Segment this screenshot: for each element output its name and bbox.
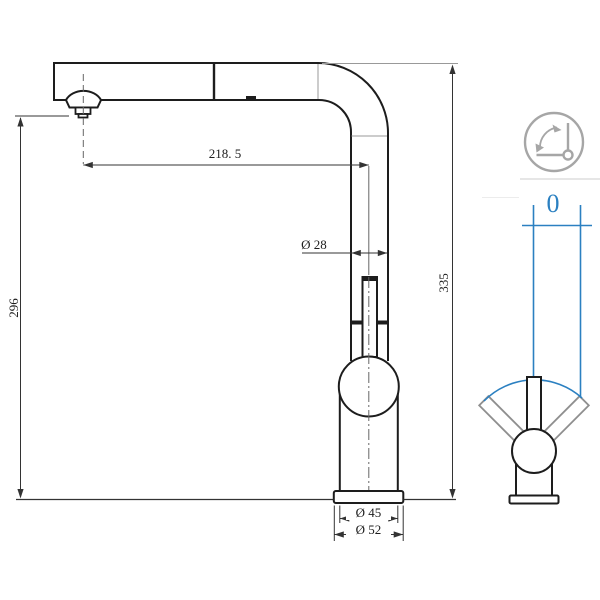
nozzle-tip [79,114,88,118]
front-spout [527,377,541,434]
handle-lever-cap [362,276,379,281]
arrow-up [449,65,455,75]
faucet-side-view [54,63,403,503]
faucet-front-view [510,377,559,504]
icon-circle [525,113,583,171]
dimension-218-5 [83,162,369,168]
front-handle-ball [512,429,556,473]
handle-lever [363,277,378,357]
swivel-dimension [484,205,592,401]
bend-inner-arc [319,100,351,361]
icon-arc-arrowhead-top [553,125,562,133]
arrow-left [83,162,93,168]
arrow-left [334,531,344,537]
arrow-left [351,250,361,256]
dimensions [15,65,456,542]
arrow-up [17,117,23,127]
dim-label-pipe-diameter: Ø 28 [288,238,340,252]
faucet-technical-drawing: 218. 5 296 335 Ø 28 Ø 45 Ø 52 0 [0,0,600,600]
icon-pivot [564,151,573,160]
dim-label-outlet-height: 296 [7,278,21,338]
dimension-296 [15,116,69,499]
swivel-angle-value: 0 [532,191,574,217]
base-flange [334,491,404,503]
swivel-angle-icon [525,113,583,171]
arrow-down [449,489,455,499]
dim-label-base-diameter: Ø 52 [346,523,391,537]
centerlines [83,74,369,490]
arrow-down [17,489,23,499]
arrow-right [394,531,404,537]
dim-label-total-height: 335 [437,253,451,313]
arrow-right [359,162,369,168]
dim-label-body-diameter: Ø 45 [346,506,391,520]
drawing-linework [0,0,600,600]
front-base-flange [510,496,559,504]
arrow-right [378,250,388,256]
dim-label-spout-reach: 218. 5 [190,147,260,161]
